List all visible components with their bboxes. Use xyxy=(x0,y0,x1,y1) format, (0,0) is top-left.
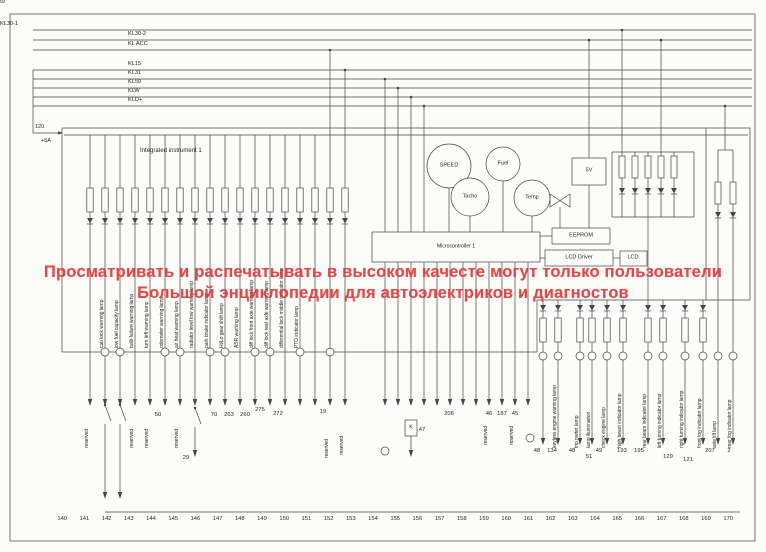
wire-number: 46 xyxy=(486,412,492,418)
bus-label: KLD+ xyxy=(128,98,142,104)
lamp-label: air heat warning lamp xyxy=(175,301,180,348)
fuel-gauge-label: Fuel xyxy=(498,161,509,167)
lamp-label: turn left warning lamp xyxy=(145,302,150,349)
wire-number: 275 xyxy=(255,408,265,414)
connector-number: 167 xyxy=(657,517,667,523)
lamp-label: low fuel capacity lamp xyxy=(115,300,120,348)
wire-number: 50 xyxy=(155,413,161,419)
eeprom-label: EEPROM xyxy=(569,233,593,239)
wire-number: 263 xyxy=(224,413,234,419)
watermark-line-2: Большой энциклопедии для автоэлектриков … xyxy=(0,284,766,303)
lamp-label: axle lift lamp xyxy=(713,421,718,448)
lamp-label: rear beam indicator lamp xyxy=(643,394,648,448)
reserved-label: reserved xyxy=(325,439,330,458)
connector-number: 163 xyxy=(568,517,578,523)
connector-number: 158 xyxy=(457,517,467,523)
wire-number: 134 xyxy=(547,449,557,455)
bus-label: KL31 xyxy=(128,71,141,77)
connector-number: 148 xyxy=(235,517,245,523)
wire-number: 195 xyxy=(634,449,644,455)
lamp-label: ASR warning lamp xyxy=(235,307,240,348)
wire-number: 70 xyxy=(211,413,217,419)
temp-gauge-label: Temp xyxy=(525,195,538,201)
wire-number: 260 xyxy=(240,413,250,419)
connector-number: 170 xyxy=(723,517,733,523)
lamp-label: left turning indicator lamp xyxy=(658,394,663,448)
wire-number: 48 xyxy=(569,449,575,455)
connector-number: 159 xyxy=(479,517,489,523)
connector-number: 141 xyxy=(80,517,90,523)
speed-gauge-label: SPEED xyxy=(440,163,459,169)
switch-symbols xyxy=(103,404,201,499)
watermark-line-1: Просматривать и распечатывать в высоком … xyxy=(0,263,766,282)
wire-number: 45 xyxy=(512,412,518,418)
wire-number: 193 xyxy=(617,449,627,455)
connector-number: 140 xyxy=(57,517,67,523)
connector-number: 153 xyxy=(346,517,356,523)
connector-number: 157 xyxy=(435,517,445,523)
reserved-label: reserved xyxy=(484,426,489,445)
lamp-label: keyless engine warning lamp xyxy=(553,385,558,448)
wire-number: 2 xyxy=(727,449,730,455)
lamp-label: check engine lamp xyxy=(602,407,607,448)
connector-number: 144 xyxy=(146,517,156,523)
connector-number: 151 xyxy=(302,517,312,523)
connector-number: 161 xyxy=(524,517,534,523)
connector-number: 146 xyxy=(191,517,201,523)
wire-number: 272 xyxy=(273,412,283,418)
feed-mark-5a: +5A xyxy=(41,139,51,145)
buzzer-icon xyxy=(550,194,570,228)
connector-number: 156 xyxy=(413,517,423,523)
wire-number: 121 xyxy=(683,458,693,464)
wire-number: 51 xyxy=(586,455,592,461)
reserved-label: reserved xyxy=(85,429,90,448)
wire-number: 129 xyxy=(663,455,673,461)
lcd-label: LCD xyxy=(627,255,638,261)
reserved-label: reserved xyxy=(130,429,135,448)
instrument-title: Integrated instrument 1 xyxy=(140,148,202,154)
connector-number: 164 xyxy=(590,517,600,523)
reserved-label: reserved xyxy=(145,429,150,448)
bus-label: KL ACC xyxy=(128,42,148,48)
reserved-label: reserved xyxy=(510,426,515,445)
wire-number: 206 xyxy=(444,412,454,418)
bus-label: KL15 xyxy=(128,62,141,68)
wire-number: 47 xyxy=(419,428,425,434)
connector-number: 150 xyxy=(279,517,289,523)
relay-label: K xyxy=(409,426,412,431)
reserved-label: reserved xyxy=(340,436,345,455)
lamp-label: lamp illumination xyxy=(587,412,592,448)
connector-number: 152 xyxy=(324,517,334,523)
bus-label: KL30-1 xyxy=(0,22,18,28)
wiring-diagram-page: KL30-1KL30-2KL ACCKL15KL31KL50KLWKLD+ 12… xyxy=(0,0,766,552)
lamp-label: trip meter lamp xyxy=(575,416,580,448)
lamp-label: odometer warning lamp xyxy=(160,297,165,348)
wire-number: 49 xyxy=(596,449,602,455)
lamp-label: front fog indicator lamp xyxy=(698,399,703,448)
wire-number: 207 xyxy=(705,449,715,455)
right-output-wires xyxy=(539,300,737,445)
connector-number: 149 xyxy=(257,517,267,523)
tacho-gauge-label: Tacho xyxy=(463,194,478,200)
lamp-label: Hi/Lo gear shift lamp xyxy=(220,303,225,348)
feed-mark-120: 120 xyxy=(35,125,44,131)
bus-label: KLW xyxy=(128,89,140,95)
lamp-label: PTO indicator lamp xyxy=(295,306,300,348)
connector-number: 166 xyxy=(635,517,645,523)
lamp-label: right turning indicator lamp xyxy=(680,391,685,448)
regulator-5v-label: 5V xyxy=(586,168,593,174)
wire-number: 29 xyxy=(183,456,189,462)
lamp-label: rear fog indicator lamp xyxy=(728,400,733,448)
bus-label: KL50 xyxy=(128,80,141,86)
connector-number: 169 xyxy=(701,517,711,523)
connector-number: 168 xyxy=(679,517,689,523)
wire-number: 19 xyxy=(320,410,326,416)
connector-number: 165 xyxy=(612,517,622,523)
microcontroller-label: Microcontroller 1 xyxy=(437,244,475,249)
connector-number: 147 xyxy=(213,517,223,523)
connector-number: 160 xyxy=(501,517,511,523)
reserved-label: reserved xyxy=(175,429,180,448)
connector-number: 155 xyxy=(390,517,400,523)
lcd-driver-label: LCD Driver xyxy=(565,255,592,261)
wire-number: 48 xyxy=(534,449,540,455)
connector-number: 145 xyxy=(168,517,178,523)
connector-number: 162 xyxy=(546,517,556,523)
lamp-label: high beam indicator lamp xyxy=(618,393,623,448)
connector-number: 142 xyxy=(102,517,112,523)
gauges xyxy=(427,144,550,232)
bus-label: KL30-2 xyxy=(128,32,146,38)
connector-number: 139 xyxy=(0,0,5,6)
wire-number: 187 xyxy=(497,412,507,418)
connector-number: 143 xyxy=(124,517,134,523)
lamp-label: cab lock warning lamp xyxy=(100,300,105,348)
connector-number: 154 xyxy=(368,517,378,523)
